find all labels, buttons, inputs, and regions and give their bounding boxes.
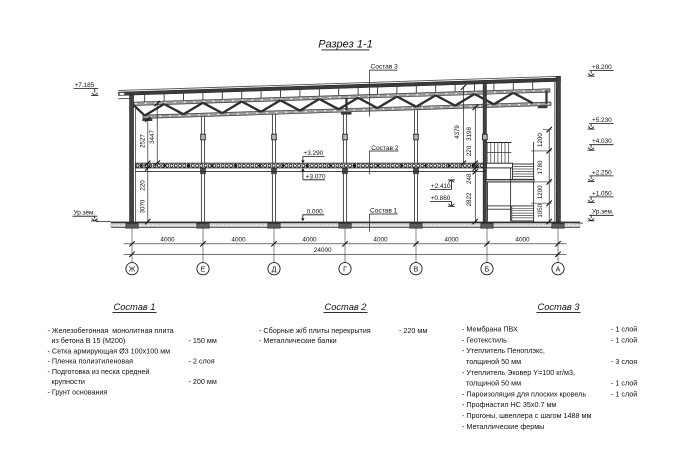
svg-text:+1.050: +1.050	[592, 190, 612, 197]
svg-text:- Сетка армирующая Ø3 100х100: - Сетка армирующая Ø3 100х100 мм	[48, 346, 171, 355]
svg-text:- Металлические фермы: - Металлические фермы	[462, 422, 544, 431]
svg-text:- 3 слоя: - 3 слоя	[611, 357, 637, 366]
svg-text:Д: Д	[272, 266, 277, 273]
svg-text:+8.200: +8.200	[592, 64, 612, 71]
svg-text:Ж: Ж	[129, 266, 136, 273]
svg-text:- Железобетонная монолитная п: - Железобетонная монолитная плита	[48, 326, 174, 335]
svg-text:+2.250: +2.250	[592, 169, 612, 176]
svg-text:Е: Е	[201, 266, 206, 273]
svg-text:4000: 4000	[231, 237, 246, 244]
svg-text:1200: 1200	[537, 133, 544, 147]
svg-text:4379: 4379	[454, 125, 461, 139]
svg-text:Ур.зем.: Ур.зем.	[74, 210, 96, 217]
svg-text:из бетона В 15 (М200): из бетона В 15 (М200)	[48, 336, 126, 345]
svg-text:В: В	[414, 266, 419, 273]
svg-text:3198: 3198	[466, 127, 473, 141]
svg-text:4000: 4000	[444, 237, 459, 244]
svg-text:220: 220	[140, 180, 147, 191]
svg-text:1780: 1780	[537, 160, 544, 174]
svg-text:- 220 мм: - 220 мм	[399, 326, 427, 335]
svg-text:2822: 2822	[466, 192, 473, 206]
svg-text:- Прогоны, швеллера с шагом 14: - Прогоны, швеллера с шагом 1488 мм	[462, 411, 591, 420]
svg-text:3070: 3070	[140, 199, 147, 213]
svg-text:+7.185: +7.185	[75, 82, 95, 89]
svg-text:Г: Г	[343, 266, 347, 273]
svg-text:- Мембрана ПВХ: - Мембрана ПВХ	[462, 325, 518, 334]
svg-text:- Пароизоляция для плоских кро: - Пароизоляция для плоских кровель	[462, 389, 586, 398]
svg-text:0.000: 0.000	[307, 208, 323, 215]
svg-text:1050: 1050	[537, 203, 544, 217]
svg-text:толщиной 50 мм: толщиной 50 мм	[462, 379, 521, 388]
svg-text:Состав 3: Состав 3	[538, 302, 581, 312]
svg-text:- Металлические балки: - Металлические балки	[259, 336, 337, 345]
svg-text:+3.070: +3.070	[306, 173, 326, 180]
svg-text:А: А	[556, 266, 561, 273]
svg-text:- Геотекстиль: - Геотекстиль	[462, 335, 507, 344]
svg-text:- Утеплитель Пеноплэкс,: - Утеплитель Пеноплэкс,	[462, 346, 545, 355]
svg-text:248: 248	[466, 173, 473, 184]
svg-text:3447: 3447	[149, 130, 156, 144]
svg-text:Состав 1: Состав 1	[114, 302, 156, 312]
svg-text:2527: 2527	[140, 134, 147, 148]
svg-text:крупности: крупности	[48, 377, 85, 386]
svg-text:24000: 24000	[314, 247, 332, 254]
svg-text:- 2 слоя: - 2 слоя	[189, 357, 215, 366]
svg-text:толщиной 50 мм: толщиной 50 мм	[462, 357, 521, 366]
svg-text:- 1 слой: - 1 слой	[611, 325, 637, 334]
svg-text:- 150 мм: - 150 мм	[189, 336, 217, 345]
svg-text:- Подготовка из песка средней: - Подготовка из песка средней	[48, 367, 150, 376]
svg-text:4000: 4000	[160, 237, 175, 244]
svg-text:Ур.зем.: Ур.зем.	[592, 209, 614, 216]
svg-text:- 1 слой: - 1 слой	[611, 379, 637, 388]
svg-text:- 1 слой: - 1 слой	[611, 335, 637, 344]
svg-text:Б: Б	[485, 266, 490, 273]
svg-text:- 1 слой: - 1 слой	[611, 389, 637, 398]
svg-text:4000: 4000	[302, 237, 317, 244]
svg-text:Разрез 1-1: Разрез 1-1	[318, 39, 373, 51]
svg-text:- Профнастил НС 35х0.7 мм: - Профнастил НС 35х0.7 мм	[462, 400, 556, 409]
svg-text:+5.230: +5.230	[592, 117, 612, 124]
svg-text:- Сборные ж/б плиты перекрытия: - Сборные ж/б плиты перекрытия	[259, 326, 371, 335]
svg-text:4000: 4000	[373, 237, 388, 244]
svg-text:220: 220	[466, 145, 473, 156]
svg-text:Состав 2: Состав 2	[325, 302, 368, 312]
svg-text:4000: 4000	[515, 237, 530, 244]
svg-text:+4.030: +4.030	[592, 138, 612, 145]
svg-text:Состав 3: Состав 3	[371, 64, 399, 71]
svg-text:+3.290: +3.290	[304, 150, 324, 157]
svg-text:- Грунт основания: - Грунт основания	[48, 387, 108, 396]
svg-text:- Пленка полиэтиленовая: - Пленка полиэтиленовая	[48, 357, 134, 366]
svg-text:- Утеплитель Эковер Y=100 кг/м: - Утеплитель Эковер Y=100 кг/м3,	[462, 368, 575, 377]
svg-text:- 200 мм: - 200 мм	[189, 377, 217, 386]
svg-text:1200: 1200	[537, 185, 544, 199]
